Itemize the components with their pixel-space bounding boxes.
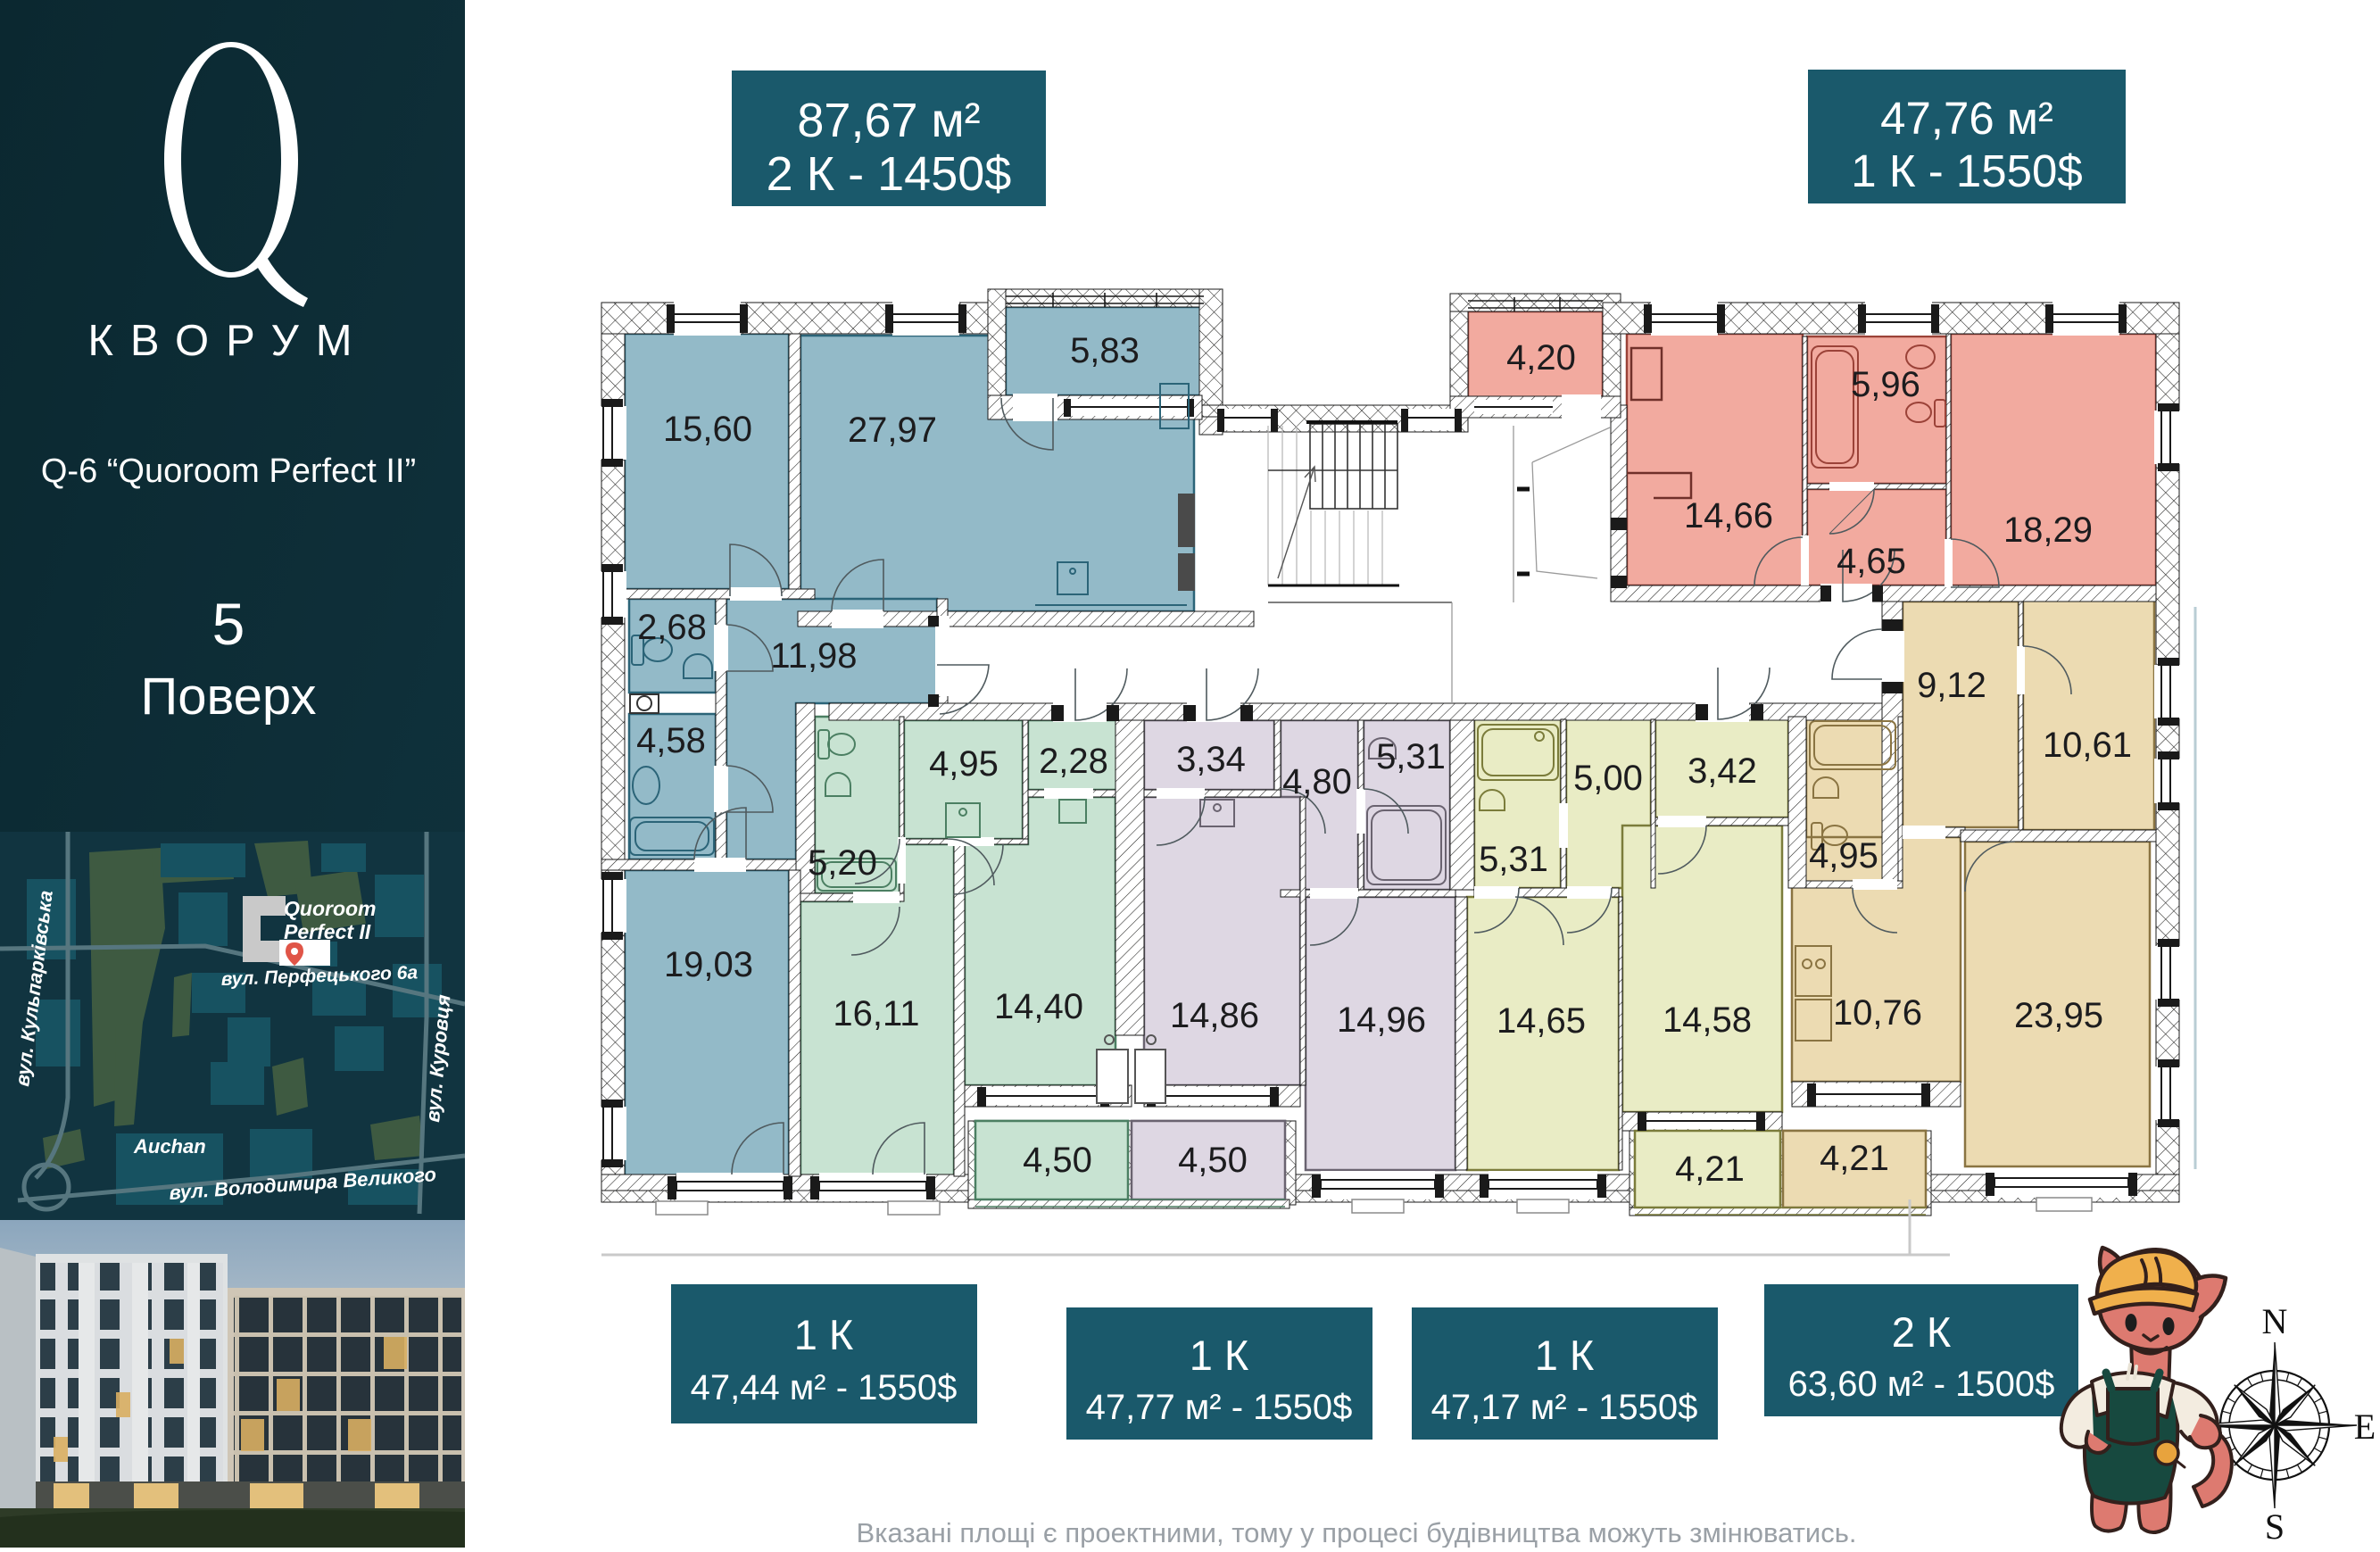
svg-text:9,12: 9,12	[1917, 666, 1986, 705]
svg-text:87,67 м²: 87,67 м²	[797, 94, 980, 147]
svg-text:1 К: 1 К	[1535, 1332, 1595, 1379]
svg-text:5,96: 5,96	[1851, 365, 1920, 404]
svg-text:E: E	[2354, 1407, 2376, 1447]
svg-text:Вказані площі є проектними, то: Вказані площі є проектними, тому у проце…	[857, 1517, 1857, 1548]
svg-text:63,60 м² - 1500$: 63,60 м² - 1500$	[1788, 1365, 2055, 1404]
svg-text:5,31: 5,31	[1376, 737, 1446, 776]
svg-text:14,66: 14,66	[1684, 496, 1773, 535]
svg-text:4,21: 4,21	[1675, 1149, 1745, 1189]
svg-text:4,95: 4,95	[929, 744, 999, 784]
svg-text:1 К: 1 К	[794, 1311, 854, 1358]
svg-text:5,31: 5,31	[1479, 840, 1548, 879]
svg-text:5,83: 5,83	[1070, 331, 1140, 370]
svg-text:47,76 м²: 47,76 м²	[1880, 93, 2053, 144]
svg-text:19,03: 19,03	[664, 945, 753, 984]
svg-text:14,65: 14,65	[1497, 1001, 1586, 1041]
svg-text:5,00: 5,00	[1573, 759, 1643, 798]
svg-text:4,20: 4,20	[1506, 338, 1576, 378]
svg-text:15,60: 15,60	[663, 410, 752, 449]
svg-text:4,95: 4,95	[1809, 836, 1878, 876]
svg-text:2 К: 2 К	[1892, 1308, 1952, 1356]
svg-text:4,80: 4,80	[1282, 762, 1352, 801]
svg-text:5,20: 5,20	[808, 843, 877, 883]
svg-text:10,76: 10,76	[1833, 993, 1922, 1033]
svg-text:16,11: 16,11	[833, 994, 919, 1033]
svg-text:1 К - 1550$: 1 К - 1550$	[1851, 145, 2082, 196]
svg-text:2,28: 2,28	[1039, 742, 1108, 781]
svg-text:3,42: 3,42	[1688, 751, 1757, 791]
svg-text:S: S	[2265, 1506, 2285, 1547]
svg-text:4,21: 4,21	[1820, 1139, 1889, 1178]
svg-text:2 К - 1450$: 2 К - 1450$	[767, 147, 1012, 201]
svg-text:4,58: 4,58	[636, 721, 706, 760]
svg-text:23,95: 23,95	[2014, 996, 2103, 1035]
svg-text:11,98: 11,98	[770, 636, 857, 676]
svg-text:2,68: 2,68	[637, 608, 707, 647]
svg-text:47,17 м² - 1550$: 47,17 м² - 1550$	[1431, 1388, 1698, 1427]
svg-text:47,77 м² - 1550$: 47,77 м² - 1550$	[1086, 1388, 1353, 1427]
svg-text:14,86: 14,86	[1170, 996, 1259, 1035]
svg-text:10,61: 10,61	[2043, 726, 2132, 765]
svg-text:18,29: 18,29	[2003, 510, 2093, 550]
svg-text:27,97: 27,97	[848, 411, 937, 450]
svg-text:4,50: 4,50	[1023, 1141, 1092, 1180]
svg-text:47,44 м² - 1550$: 47,44 м² - 1550$	[691, 1368, 958, 1407]
svg-text:14,58: 14,58	[1663, 1000, 1752, 1040]
svg-text:14,40: 14,40	[994, 987, 1083, 1026]
svg-text:14,96: 14,96	[1337, 1000, 1426, 1040]
svg-text:N: N	[2262, 1301, 2288, 1341]
svg-text:4,65: 4,65	[1837, 542, 1906, 581]
svg-text:3,34: 3,34	[1176, 740, 1246, 779]
svg-text:1 К: 1 К	[1190, 1332, 1249, 1379]
svg-text:4,50: 4,50	[1178, 1141, 1248, 1180]
